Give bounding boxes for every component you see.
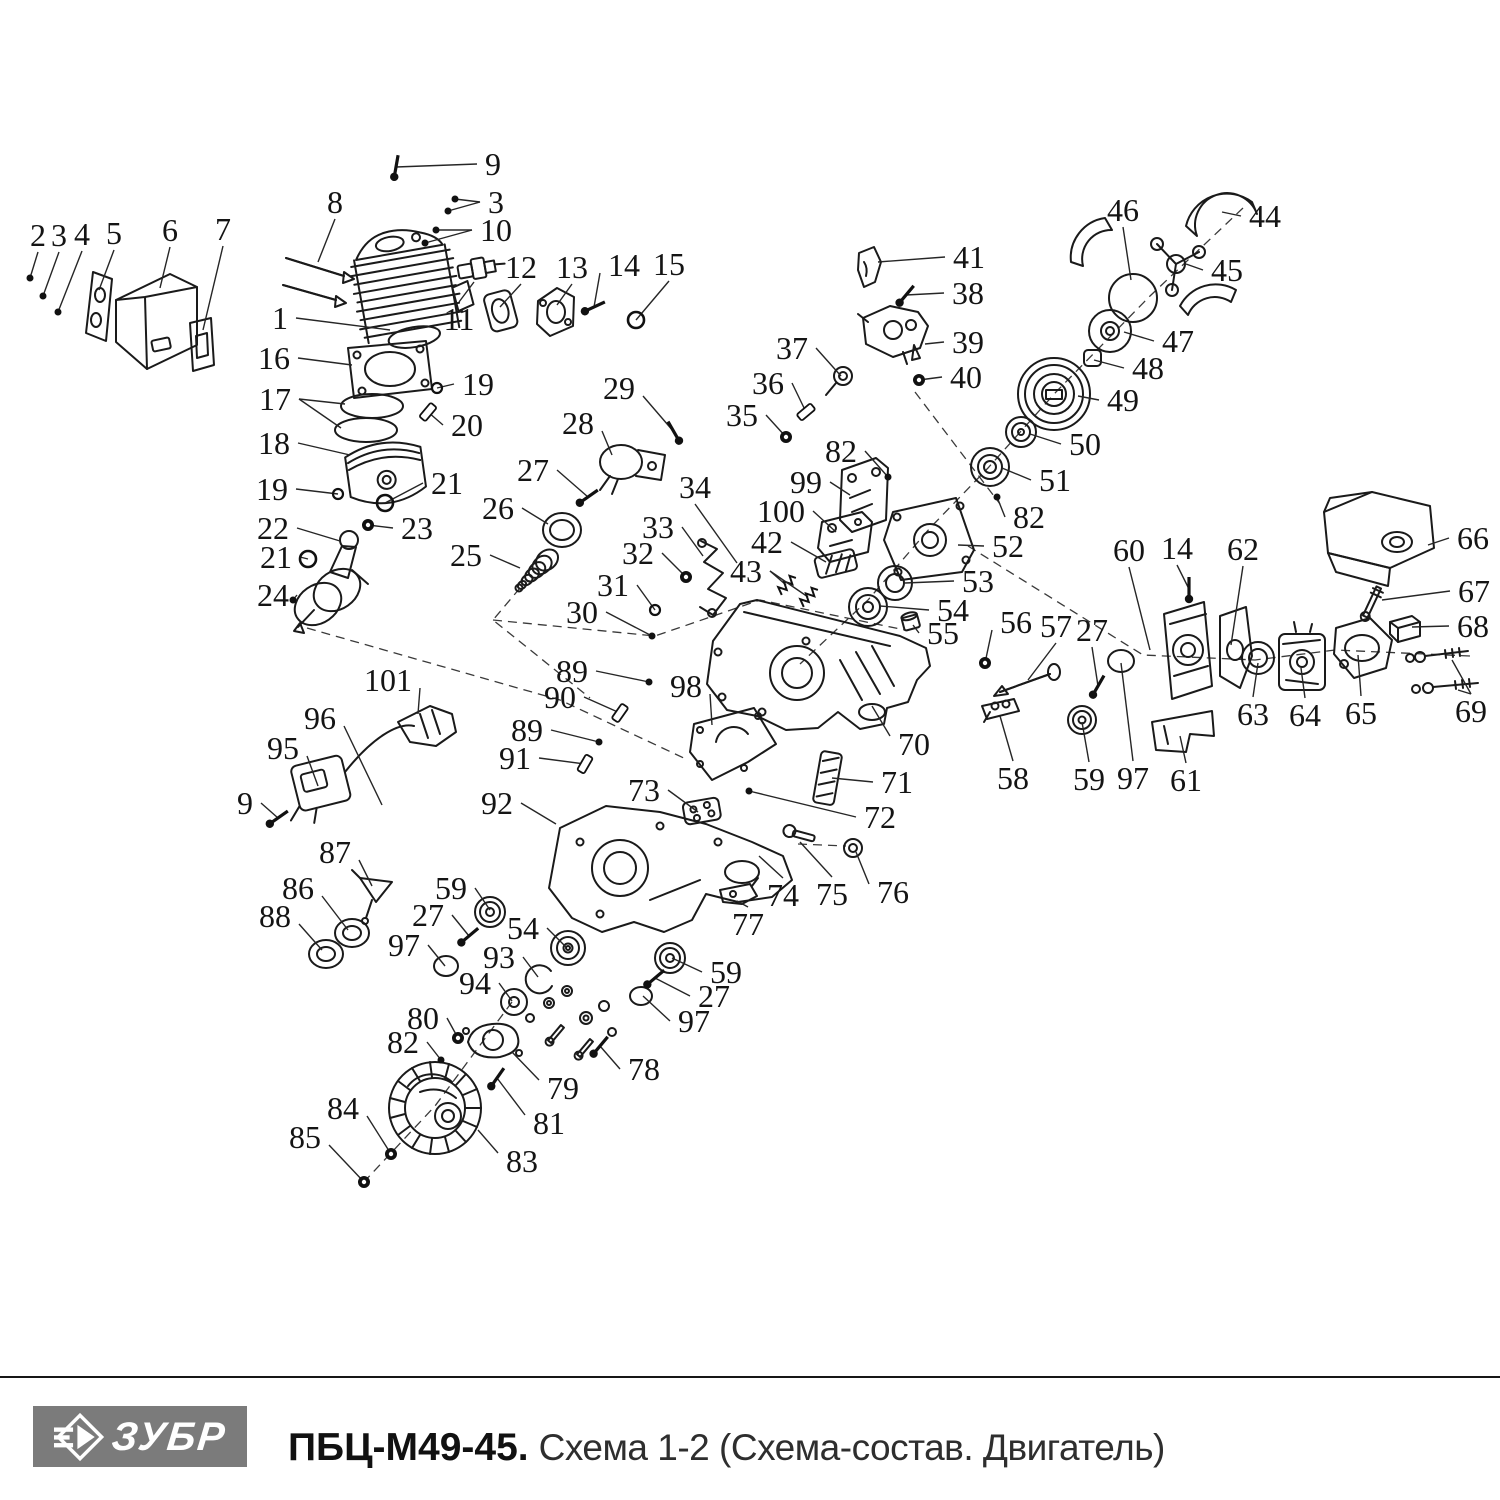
part-glyph-10: [431, 225, 441, 235]
leader-line-3: [455, 199, 480, 202]
part-glyph-27: [455, 925, 480, 948]
part-number-9: 9: [485, 146, 501, 182]
callout-83: 83: [478, 1130, 538, 1179]
callout-91: 91: [499, 740, 593, 776]
part-glyph-90: [612, 703, 629, 722]
part-number-73: 73: [628, 772, 660, 808]
leader-line-69: [1452, 660, 1471, 694]
part-number-48: 48: [1132, 350, 1164, 386]
leader-line-90: [584, 697, 620, 713]
leader-line-9: [261, 803, 278, 818]
bearing-54b-drawing: [551, 931, 585, 965]
part-number-15: 15: [653, 246, 685, 282]
callout-23: 23: [360, 510, 433, 546]
callout-100: 100: [757, 493, 836, 532]
part-number-33: 33: [642, 509, 674, 545]
piston-drawing: [344, 438, 428, 508]
leader-line-16: [298, 358, 352, 365]
callout-66: 66: [1428, 520, 1489, 556]
callout-14: 14: [1161, 530, 1193, 603]
rubber-block-drawing: [814, 548, 858, 578]
callout-70: 70: [872, 706, 930, 762]
callout-7: 7: [203, 211, 231, 330]
part-glyph-23: [360, 517, 377, 534]
clutch-washer-drawing: [1089, 310, 1131, 352]
callout-97: 97: [1117, 663, 1149, 796]
part-number-98: 98: [670, 668, 702, 704]
callout-9: 9: [237, 785, 290, 830]
leader-line-76: [856, 852, 869, 884]
part-glyph-30: [647, 631, 657, 641]
part-number-9: 9: [237, 785, 253, 821]
part-glyph-3: [443, 206, 453, 216]
part-number-25: 25: [450, 537, 482, 573]
callout-48: 48: [1094, 350, 1164, 386]
callout-14: 14: [579, 247, 640, 317]
callout-97: 97: [643, 996, 710, 1039]
callout-35: 35: [726, 397, 794, 445]
part-glyph-72: [744, 786, 754, 796]
part-number-18: 18: [258, 425, 290, 461]
callout-75: 75: [800, 842, 848, 912]
part-number-3: 3: [51, 217, 67, 253]
part-number-28: 28: [562, 405, 594, 441]
clutch-spring-ring-drawing: [1109, 274, 1157, 322]
breather-plug-drawing: [901, 611, 921, 631]
part-number-21: 21: [431, 465, 463, 501]
leader-line-4: [58, 251, 82, 312]
part-number-78: 78: [628, 1051, 660, 1087]
leader-line-19: [296, 489, 338, 494]
part-glyph-36: [797, 403, 816, 421]
bushing-drawing: [844, 839, 862, 857]
part-number-30: 30: [566, 594, 598, 630]
part-glyph-9: [264, 808, 290, 830]
part-number-2: 2: [30, 217, 46, 253]
part-number-58: 58: [997, 760, 1029, 796]
part-glyph-20: [419, 403, 437, 422]
leader-line-66: [1428, 538, 1449, 545]
part-number-62: 62: [1227, 531, 1259, 567]
callout-86: 86: [282, 870, 348, 930]
callout-12: 12: [500, 249, 537, 307]
part-glyph-91: [577, 754, 593, 774]
part-glyph-78: [588, 1034, 611, 1059]
callout-50: 50: [1030, 426, 1101, 462]
washer-94-drawing: [501, 989, 527, 1015]
callout-79: 79: [512, 1052, 579, 1106]
starter-washer-drawing: [335, 919, 369, 947]
callout-98: 98: [670, 668, 712, 725]
leader-line-3: [43, 252, 59, 296]
part-number-70: 70: [898, 726, 930, 762]
leader-line-48: [1094, 360, 1124, 368]
brand-name: ЗУБР: [110, 1417, 228, 1457]
muffler-bolts-drawing: [283, 258, 354, 307]
leader-line-86: [322, 896, 348, 930]
leader-line-33: [682, 527, 703, 556]
ring-97a-drawing: [434, 956, 458, 976]
part-number-95: 95: [267, 730, 299, 766]
brake-lever-drawing: [698, 539, 726, 617]
leader-line-61: [1180, 736, 1186, 763]
part-glyph-3: [38, 291, 48, 301]
oil-hose-drawing: [994, 664, 1060, 696]
leader-line-81: [497, 1078, 525, 1115]
part-number-36: 36: [752, 365, 784, 401]
pulley-59c-drawing: [655, 943, 685, 973]
part-number-75: 75: [816, 876, 848, 912]
part-number-68: 68: [1457, 608, 1489, 644]
part-number-20: 20: [451, 407, 483, 443]
callout-9: 9: [389, 146, 501, 182]
part-number-21: 21: [260, 539, 292, 575]
pulley-59b-drawing: [1068, 706, 1096, 734]
leader-line-6: [160, 247, 170, 288]
page-title: ПБЦ-М49-45.Схема 1-2 (Схема-состав. Двиг…: [288, 1421, 1165, 1475]
callout-36: 36: [752, 365, 815, 421]
leader-line-72: [749, 791, 856, 817]
callout-54: 54: [507, 910, 566, 947]
kill-switch-drawing: [352, 870, 392, 924]
part-number-46: 46: [1107, 192, 1139, 228]
callout-20: 20: [419, 403, 483, 443]
callout-16: 16: [258, 340, 352, 376]
leader-line-26: [522, 508, 548, 524]
leader-line-27: [452, 915, 469, 936]
zubr-logo-icon: [54, 1411, 106, 1463]
leader-line-22: [297, 528, 340, 541]
leader-line-7: [203, 246, 223, 330]
part-number-52: 52: [992, 528, 1024, 564]
leader-line-84: [367, 1116, 391, 1154]
needle-bearing-drawing: [1084, 350, 1101, 366]
exploded-diagram: 2345678931011112131415161718192021192223…: [0, 0, 1500, 1376]
part-number-65: 65: [1345, 695, 1377, 731]
part-number-19: 19: [256, 471, 288, 507]
part-number-26: 26: [482, 490, 514, 526]
part-number-64: 64: [1289, 697, 1321, 733]
part-number-81: 81: [533, 1105, 565, 1141]
starter-cap-drawing: [309, 940, 343, 968]
carb-bracket-drawing: [1334, 618, 1392, 678]
part-number-19: 19: [462, 366, 494, 402]
part-number-91: 91: [499, 740, 531, 776]
part-number-63: 63: [1237, 696, 1269, 732]
part-glyph-89: [644, 677, 654, 687]
leader-line-2: [30, 252, 38, 278]
callout-8: 8: [318, 184, 343, 262]
part-number-27: 27: [517, 452, 549, 488]
callout-60: 60: [1113, 532, 1150, 650]
fastener-cluster-drawing: [526, 986, 616, 1061]
part-number-94: 94: [459, 965, 491, 1001]
leader-line-78: [600, 1046, 620, 1069]
callout-34: 34: [679, 469, 737, 563]
ring-97c-drawing: [630, 987, 652, 1005]
part-number-69: 69: [1455, 693, 1487, 729]
callout-65: 65: [1345, 655, 1377, 731]
part-number-1: 1: [272, 300, 288, 336]
callout-69: 69: [1452, 660, 1487, 729]
part-glyph-4: [53, 307, 63, 317]
leader-line-58: [1000, 716, 1013, 761]
leader-line-89: [551, 730, 599, 742]
part-number-71: 71: [881, 764, 913, 800]
part-number-97: 97: [1117, 760, 1149, 796]
part-number-38: 38: [952, 275, 984, 311]
part-number-74: 74: [767, 877, 799, 913]
part-glyph-43: [798, 586, 819, 607]
heat-shield-drawing: [1152, 711, 1214, 752]
cylinder-gasket-drawing: [348, 341, 432, 398]
part-number-29: 29: [603, 370, 635, 406]
callout-27: 27: [517, 452, 600, 509]
leader-line-49: [1078, 396, 1099, 400]
part-number-97: 97: [388, 927, 420, 963]
part-number-88: 88: [259, 898, 291, 934]
leader-line-87: [359, 860, 372, 886]
part-number-35: 35: [726, 397, 758, 433]
callout-76: 76: [856, 852, 909, 910]
scheme-subtitle: Схема 1-2 (Схема-состав. Двигатель): [539, 1427, 1165, 1468]
choke-knob-drawing: [1390, 616, 1420, 642]
muffler-gasket-drawing: [86, 272, 112, 341]
callout-38: 38: [894, 275, 984, 311]
intake-elbow-drawing: [858, 247, 881, 287]
intake-manifold-drawing: [858, 306, 928, 364]
callout-85: 85: [289, 1119, 372, 1190]
callout-40: 40: [911, 359, 982, 395]
air-filter-box-drawing: [1324, 492, 1434, 586]
part-number-92: 92: [481, 785, 513, 821]
leader-line-39: [925, 342, 944, 344]
part-number-43: 43: [730, 553, 762, 589]
model-code: ПБЦ-М49-45.: [288, 1426, 529, 1469]
part-number-14: 14: [608, 247, 640, 283]
part-number-6: 6: [162, 212, 178, 248]
leader-line-83: [478, 1130, 498, 1153]
part-number-100: 100: [757, 493, 805, 529]
part-number-5: 5: [106, 215, 122, 251]
page: 2345678931011112131415161718192021192223…: [0, 0, 1500, 1500]
part-number-87: 87: [319, 834, 351, 870]
leader-line-14: [1177, 565, 1189, 589]
callout-49: 49: [1078, 382, 1139, 418]
leader-line-63: [1253, 663, 1258, 697]
leader-line-97: [1121, 663, 1133, 761]
part-glyph-3: [450, 194, 460, 204]
oil-seal-drawing: [543, 513, 581, 547]
part-number-56: 56: [1000, 604, 1032, 640]
part-number-39: 39: [952, 324, 984, 360]
part-number-82: 82: [825, 433, 857, 469]
leader-line-67: [1382, 591, 1450, 600]
leader-line-75: [800, 842, 832, 877]
spark-plug-drawing: [457, 254, 507, 282]
leader-line-57: [1028, 643, 1056, 680]
part-number-12: 12: [505, 249, 537, 285]
leader-line-88: [299, 924, 322, 950]
callout-67: 67: [1382, 573, 1490, 609]
callout-101: 101: [364, 662, 420, 714]
oil-pickup-drawing: [782, 824, 816, 844]
oil-worm-gear-drawing: [516, 545, 563, 591]
part-number-45: 45: [1211, 252, 1243, 288]
part-number-34: 34: [679, 469, 711, 505]
pulley-59a-drawing: [475, 897, 505, 927]
part-glyph-38: [894, 283, 917, 308]
callout-42: 42: [751, 524, 826, 562]
leader-line-41: [878, 257, 945, 262]
exhaust-gasket-drawing: [483, 289, 519, 333]
leader-line-92: [521, 803, 556, 824]
part-number-57: 57: [1040, 608, 1072, 644]
callout-72: 72: [744, 786, 896, 835]
part-number-51: 51: [1039, 462, 1071, 498]
callout-74: 74: [759, 856, 799, 913]
leader-line-25: [490, 555, 520, 568]
leader-line-3: [448, 202, 480, 211]
leader-line-37: [816, 348, 841, 376]
callout-10: 10: [420, 212, 512, 248]
callout-73: 73: [628, 772, 698, 812]
flywheel-drawing: [389, 1062, 481, 1154]
callout-2: 2: [25, 217, 46, 283]
part-glyph-82: [992, 492, 1002, 502]
part-number-8: 8: [327, 184, 343, 220]
leader-line-85: [329, 1145, 364, 1182]
part-number-23: 23: [401, 510, 433, 546]
part-glyph-9: [389, 154, 402, 181]
part-number-66: 66: [1457, 520, 1489, 556]
part-number-67: 67: [1458, 573, 1490, 609]
callout-56: 56: [977, 604, 1032, 671]
crankshaft-drawing: [287, 531, 369, 634]
part-number-11: 11: [444, 301, 475, 337]
carb-plate-drawing: [1164, 602, 1212, 699]
part-number-61: 61: [1170, 762, 1202, 798]
leader-line-68: [1412, 626, 1449, 627]
leader-line-8: [318, 219, 335, 262]
callout-62: 62: [1227, 531, 1259, 645]
part-glyph-40: [911, 372, 928, 389]
callout-37: 37: [776, 330, 841, 376]
callout-31: 31: [597, 567, 662, 617]
part-glyph-56: [977, 655, 994, 672]
leader-line-46: [1123, 227, 1131, 280]
part-number-17: 17: [259, 381, 291, 417]
callout-82: 82: [825, 433, 893, 482]
callout-21: 21: [260, 539, 319, 575]
leader-line-79: [512, 1052, 539, 1080]
callout-71: 71: [832, 764, 913, 800]
part-number-97: 97: [678, 1003, 710, 1039]
part-number-83: 83: [506, 1143, 538, 1179]
oil-pump-drawing: [600, 445, 665, 494]
part-number-41: 41: [953, 239, 985, 275]
leader-line-27: [1092, 647, 1098, 686]
leader-line-9: [396, 164, 477, 167]
part-number-31: 31: [597, 567, 629, 603]
part-number-59: 59: [1073, 761, 1105, 797]
callout-39: 39: [925, 324, 984, 360]
clutch-spider-drawing: [1151, 238, 1205, 296]
callout-58: 58: [997, 716, 1029, 796]
callout-64: 64: [1289, 668, 1321, 733]
part-number-60: 60: [1113, 532, 1145, 568]
callout-19: 19: [430, 366, 494, 402]
footer-divider: [0, 1376, 1500, 1378]
part-number-79: 79: [547, 1070, 579, 1106]
callout-51: 51: [1002, 462, 1071, 498]
leader-line-27: [655, 978, 690, 996]
leader-line-97: [643, 996, 670, 1021]
part-number-101: 101: [364, 662, 412, 698]
leader-line-100: [813, 511, 836, 532]
callout-41: 41: [878, 239, 985, 275]
leader-line-27: [557, 470, 588, 497]
leader-line-99: [830, 482, 850, 495]
part-number-24: 24: [257, 577, 289, 613]
leader-line-14: [594, 273, 600, 307]
part-number-13: 13: [556, 249, 588, 285]
part-glyph-27: [574, 487, 600, 509]
mount-bracket-drawing: [682, 797, 721, 825]
part-number-14: 14: [1161, 530, 1193, 566]
callout-92: 92: [481, 785, 556, 824]
part-number-4: 4: [74, 216, 90, 252]
part-glyph-14: [1185, 577, 1193, 603]
leader-line-60: [1129, 567, 1150, 650]
part-number-85: 85: [289, 1119, 321, 1155]
part-number-55: 55: [927, 615, 959, 651]
leader-line-93: [523, 957, 538, 977]
part-number-10: 10: [480, 212, 512, 248]
muffler-plate-drawing: [190, 318, 214, 371]
callout-27: 27: [1076, 612, 1108, 700]
muffler-drawing: [116, 274, 197, 369]
part-number-90: 90: [544, 679, 576, 715]
callout-61: 61: [1170, 736, 1202, 798]
callout-77: 77: [732, 901, 764, 942]
part-number-50: 50: [1069, 426, 1101, 462]
leader-line-89: [596, 671, 649, 682]
callout-26: 26: [482, 490, 548, 526]
part-number-77: 77: [732, 906, 764, 942]
callout-25: 25: [450, 537, 520, 573]
part-glyph-27: [1087, 674, 1107, 701]
leader-line-12: [500, 284, 521, 307]
oiler-fitting-drawing: [826, 367, 852, 395]
crank-bearing-drawing: [849, 588, 887, 626]
leader-line-18: [298, 443, 350, 455]
part-number-72: 72: [864, 799, 896, 835]
part-number-44: 44: [1249, 198, 1281, 234]
part-number-82: 82: [387, 1024, 419, 1060]
leader-line-45: [1186, 264, 1203, 270]
part-number-47: 47: [1162, 323, 1194, 359]
part-glyph-2: [25, 273, 35, 283]
callout-78: 78: [588, 1034, 660, 1087]
part-glyph-29: [664, 420, 684, 447]
part-number-27: 27: [1076, 612, 1108, 648]
brand-logo: ЗУБР: [33, 1406, 247, 1467]
part-number-49: 49: [1107, 382, 1139, 418]
leader-line-38: [906, 293, 944, 295]
part-glyph-14: [579, 298, 606, 317]
callout-28: 28: [562, 405, 612, 455]
